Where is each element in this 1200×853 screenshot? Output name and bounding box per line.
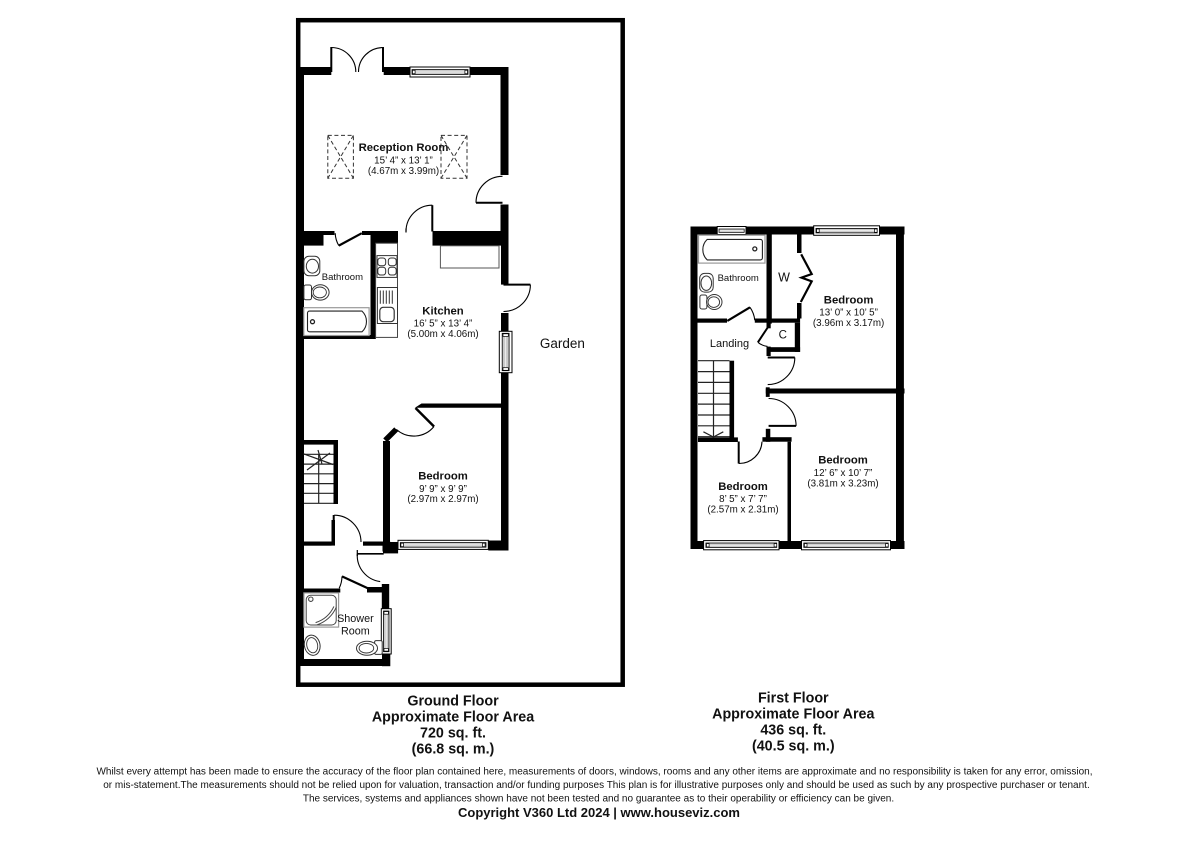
- svg-text:436 sq. ft.: 436 sq. ft.: [760, 723, 826, 739]
- svg-text:Bedroom: Bedroom: [418, 470, 468, 482]
- svg-text:12’ 6” x 10’ 7”: 12’ 6” x 10’ 7”: [814, 468, 873, 479]
- svg-text:8’ 5” x 7’ 7”: 8’ 5” x 7’ 7”: [719, 494, 767, 505]
- svg-text:First Floor: First Floor: [758, 690, 829, 706]
- svg-text:C: C: [779, 330, 787, 342]
- svg-text:Approximate Floor Area: Approximate Floor Area: [712, 706, 875, 722]
- svg-text:Bedroom: Bedroom: [824, 294, 874, 306]
- svg-text:Copyright V360 Ltd 2024 | www.: Copyright V360 Ltd 2024 | www.houseviz.c…: [458, 805, 740, 820]
- svg-text:Garden: Garden: [540, 336, 585, 351]
- svg-text:(40.5 sq. m.): (40.5 sq. m.): [752, 739, 835, 755]
- svg-text:Bedroom: Bedroom: [818, 455, 868, 467]
- svg-text:The services, systems and appl: The services, systems and appliances sho…: [303, 793, 894, 804]
- svg-text:(66.8 sq. m.): (66.8 sq. m.): [412, 742, 495, 758]
- svg-text:Kitchen: Kitchen: [422, 306, 464, 318]
- svg-text:Approximate Floor Area: Approximate Floor Area: [372, 710, 535, 726]
- svg-text:Bathroom: Bathroom: [322, 272, 363, 283]
- svg-text:Bathroom: Bathroom: [718, 273, 759, 284]
- svg-text:(3.96m x 3.17m): (3.96m x 3.17m): [813, 318, 884, 329]
- svg-text:Shower: Shower: [337, 613, 374, 625]
- svg-text:15’ 4” x 13’ 1”: 15’ 4” x 13’ 1”: [374, 155, 433, 166]
- svg-text:(3.81m x 3.23m): (3.81m x 3.23m): [807, 478, 878, 489]
- svg-text:(4.67m x 3.99m): (4.67m x 3.99m): [368, 166, 439, 177]
- svg-text:Room: Room: [341, 626, 370, 638]
- svg-text:Ground Floor: Ground Floor: [407, 694, 499, 710]
- svg-text:16’ 5” x 13’ 4”: 16’ 5” x 13’ 4”: [414, 319, 473, 330]
- svg-text:Reception Room: Reception Room: [359, 142, 449, 154]
- svg-text:13’ 0” x 10’ 5”: 13’ 0” x 10’ 5”: [819, 307, 878, 318]
- svg-text:(2.57m x 2.31m): (2.57m x 2.31m): [707, 505, 778, 516]
- svg-text:720 sq. ft.: 720 sq. ft.: [420, 726, 486, 742]
- svg-text:W: W: [778, 270, 790, 284]
- svg-text:Landing: Landing: [710, 338, 749, 350]
- svg-text:(2.97m x 2.97m): (2.97m x 2.97m): [407, 494, 478, 505]
- svg-text:Bedroom: Bedroom: [718, 481, 768, 493]
- svg-text:(5.00m x 4.06m): (5.00m x 4.06m): [407, 329, 478, 340]
- svg-text:or mis-statement.The measureme: or mis-statement.The measurements should…: [103, 780, 1089, 791]
- svg-text:Whilst every attempt has been: Whilst every attempt has been made to en…: [96, 766, 1092, 777]
